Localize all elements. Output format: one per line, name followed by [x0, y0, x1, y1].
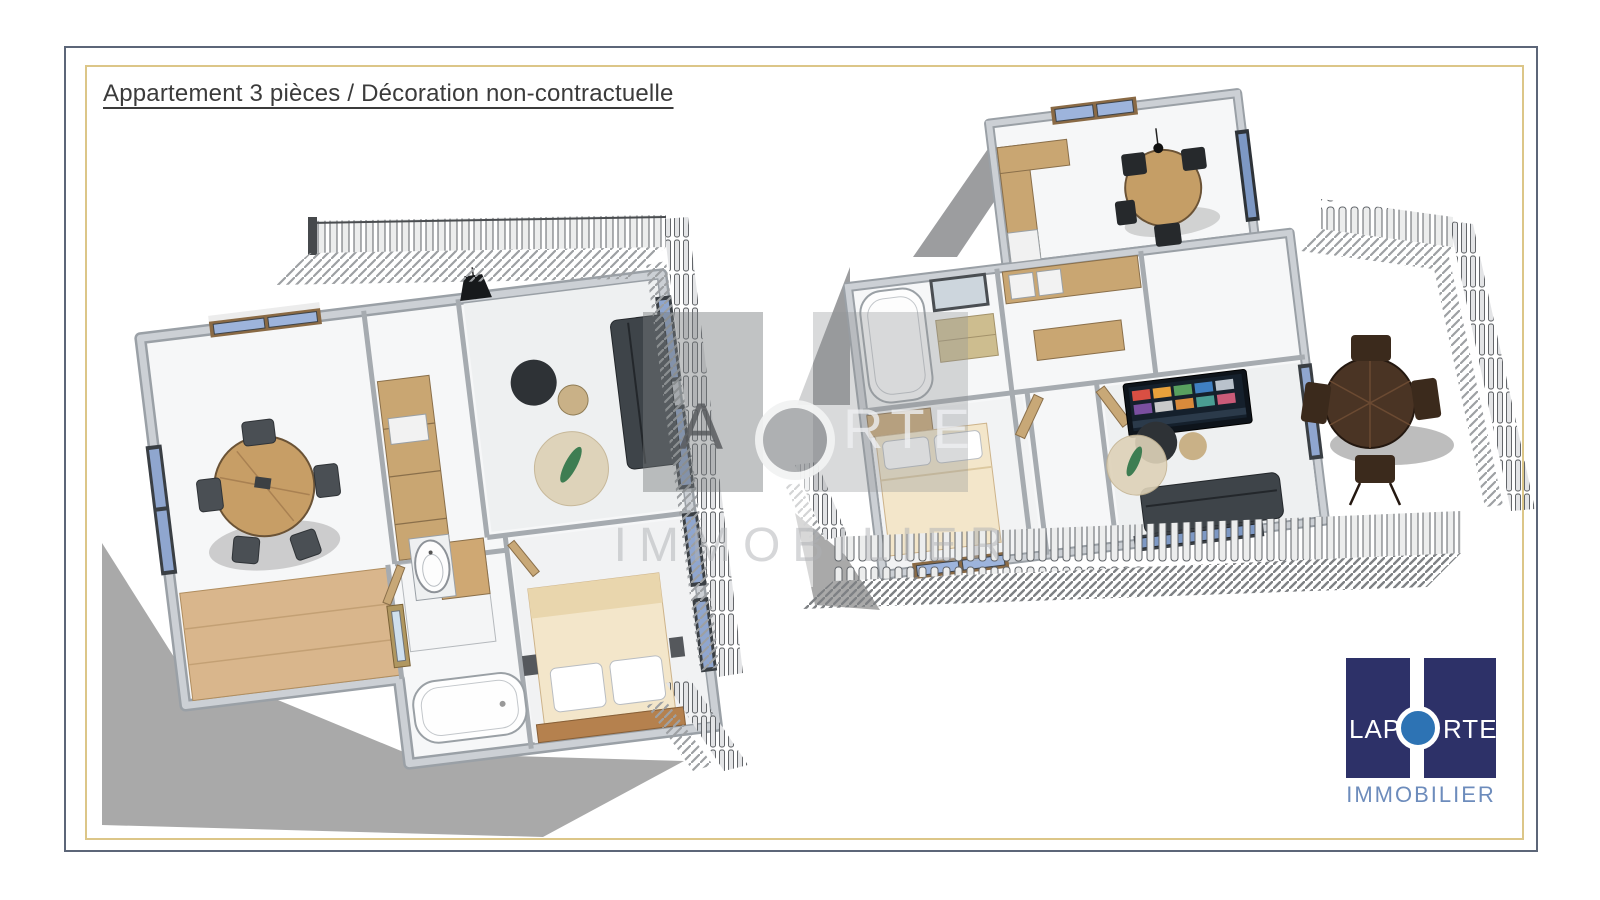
terrace-fence-top — [1301, 199, 1453, 269]
logo-word-left: LAP — [1349, 714, 1401, 745]
terrace-fence-right — [1431, 221, 1535, 511]
garden-fence-top — [272, 215, 666, 285]
watermark-subtitle: IMMOBILIER — [595, 518, 1035, 573]
page-title: Appartement 3 pièces / Décoration non-co… — [103, 80, 674, 108]
watermark-letters: RTE — [843, 396, 978, 461]
bathtub — [410, 670, 529, 745]
laporte-logo: LAP RTE IMMOBILIER — [1344, 650, 1498, 810]
watermark-circle — [755, 400, 835, 480]
brand-watermark: A RTE IMMOBILIER — [615, 292, 1015, 592]
brochure-page: Appartement 3 pièces / Décoration non-co… — [0, 0, 1600, 900]
bathroom-sink-mirror — [409, 534, 456, 600]
logo-circle-icon — [1396, 706, 1440, 750]
logo-word-right: RTE — [1443, 714, 1498, 745]
watermark-letter: A — [679, 388, 723, 464]
logo-subtitle: IMMOBILIER — [1344, 782, 1498, 808]
